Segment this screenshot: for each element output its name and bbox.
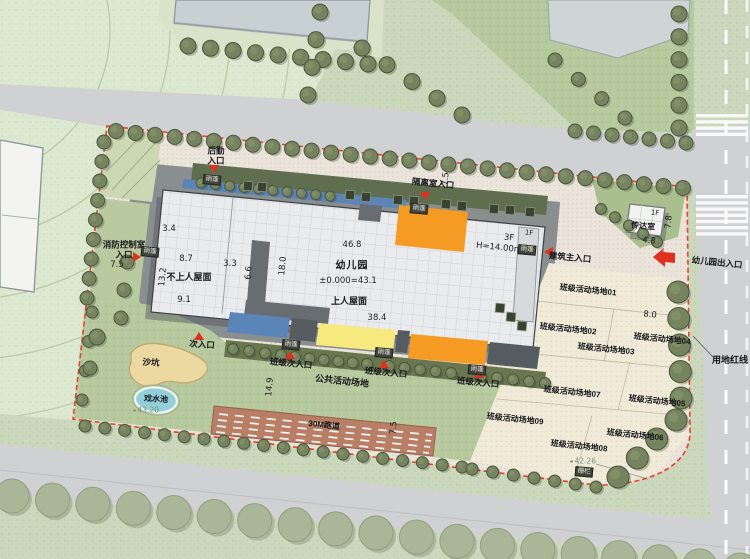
roof-block-orange-north	[395, 205, 468, 252]
canopy-dark-1	[289, 318, 318, 342]
site-plan: 后勤入口 隔离室入口 消防控制室入口 7.5 建筑主入口 幼儿园出入口 次入口 …	[0, 0, 750, 559]
site-plan-drawing	[0, 0, 750, 559]
